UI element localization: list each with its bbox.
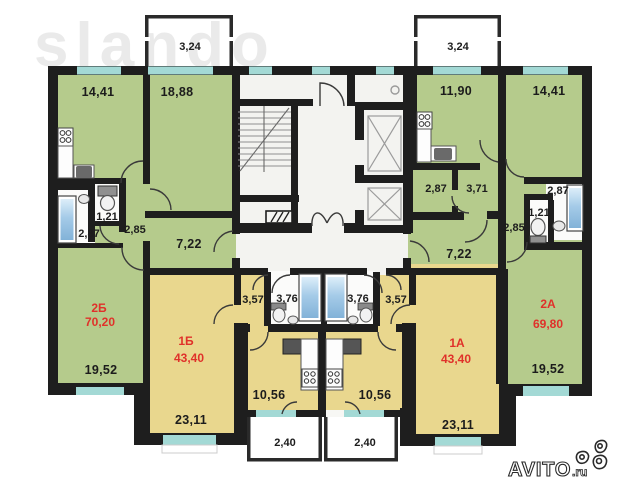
svg-text:2,40: 2,40 xyxy=(274,437,295,449)
svg-text:14,41: 14,41 xyxy=(82,85,115,99)
svg-text:7,22: 7,22 xyxy=(446,247,472,261)
svg-text:2,85: 2,85 xyxy=(503,222,524,234)
svg-text:3,57: 3,57 xyxy=(385,294,406,306)
svg-text:3,76: 3,76 xyxy=(276,293,297,305)
svg-text:1Б: 1Б xyxy=(178,334,194,348)
svg-text:3,24: 3,24 xyxy=(447,41,469,53)
svg-text:69,80: 69,80 xyxy=(533,317,563,331)
svg-text:7,22: 7,22 xyxy=(176,237,202,251)
svg-text:10,56: 10,56 xyxy=(253,388,286,402)
svg-text:70,20: 70,20 xyxy=(85,315,115,329)
svg-text:43,40: 43,40 xyxy=(174,351,204,365)
svg-text:23,11: 23,11 xyxy=(175,413,207,427)
svg-text:23,11: 23,11 xyxy=(442,418,474,432)
svg-text:3,24: 3,24 xyxy=(179,41,201,53)
svg-text:10,56: 10,56 xyxy=(359,388,392,402)
svg-text:2,40: 2,40 xyxy=(354,437,375,449)
svg-text:14,41: 14,41 xyxy=(533,84,566,98)
svg-text:19,52: 19,52 xyxy=(532,362,565,376)
svg-text:3,76: 3,76 xyxy=(347,293,368,305)
svg-text:2,87: 2,87 xyxy=(425,183,446,195)
svg-text:AVITO: AVITO xyxy=(508,459,571,480)
svg-text:2А: 2А xyxy=(540,297,556,311)
svg-text:43,40: 43,40 xyxy=(441,352,471,366)
svg-text:2Б: 2Б xyxy=(91,301,107,315)
svg-text:11,90: 11,90 xyxy=(440,84,472,98)
svg-text:3,71: 3,71 xyxy=(466,183,487,195)
svg-text:3,57: 3,57 xyxy=(242,294,263,306)
svg-text:2,87: 2,87 xyxy=(547,185,568,197)
svg-text:2,85: 2,85 xyxy=(124,224,145,236)
svg-text:1,21: 1,21 xyxy=(96,211,117,223)
svg-text:1,21: 1,21 xyxy=(528,207,549,219)
svg-text:.ru: .ru xyxy=(572,465,587,479)
svg-text:19,52: 19,52 xyxy=(85,363,118,377)
svg-text:1А: 1А xyxy=(449,336,465,350)
svg-text:18,88: 18,88 xyxy=(161,85,194,99)
svg-text:2,87: 2,87 xyxy=(78,228,99,240)
